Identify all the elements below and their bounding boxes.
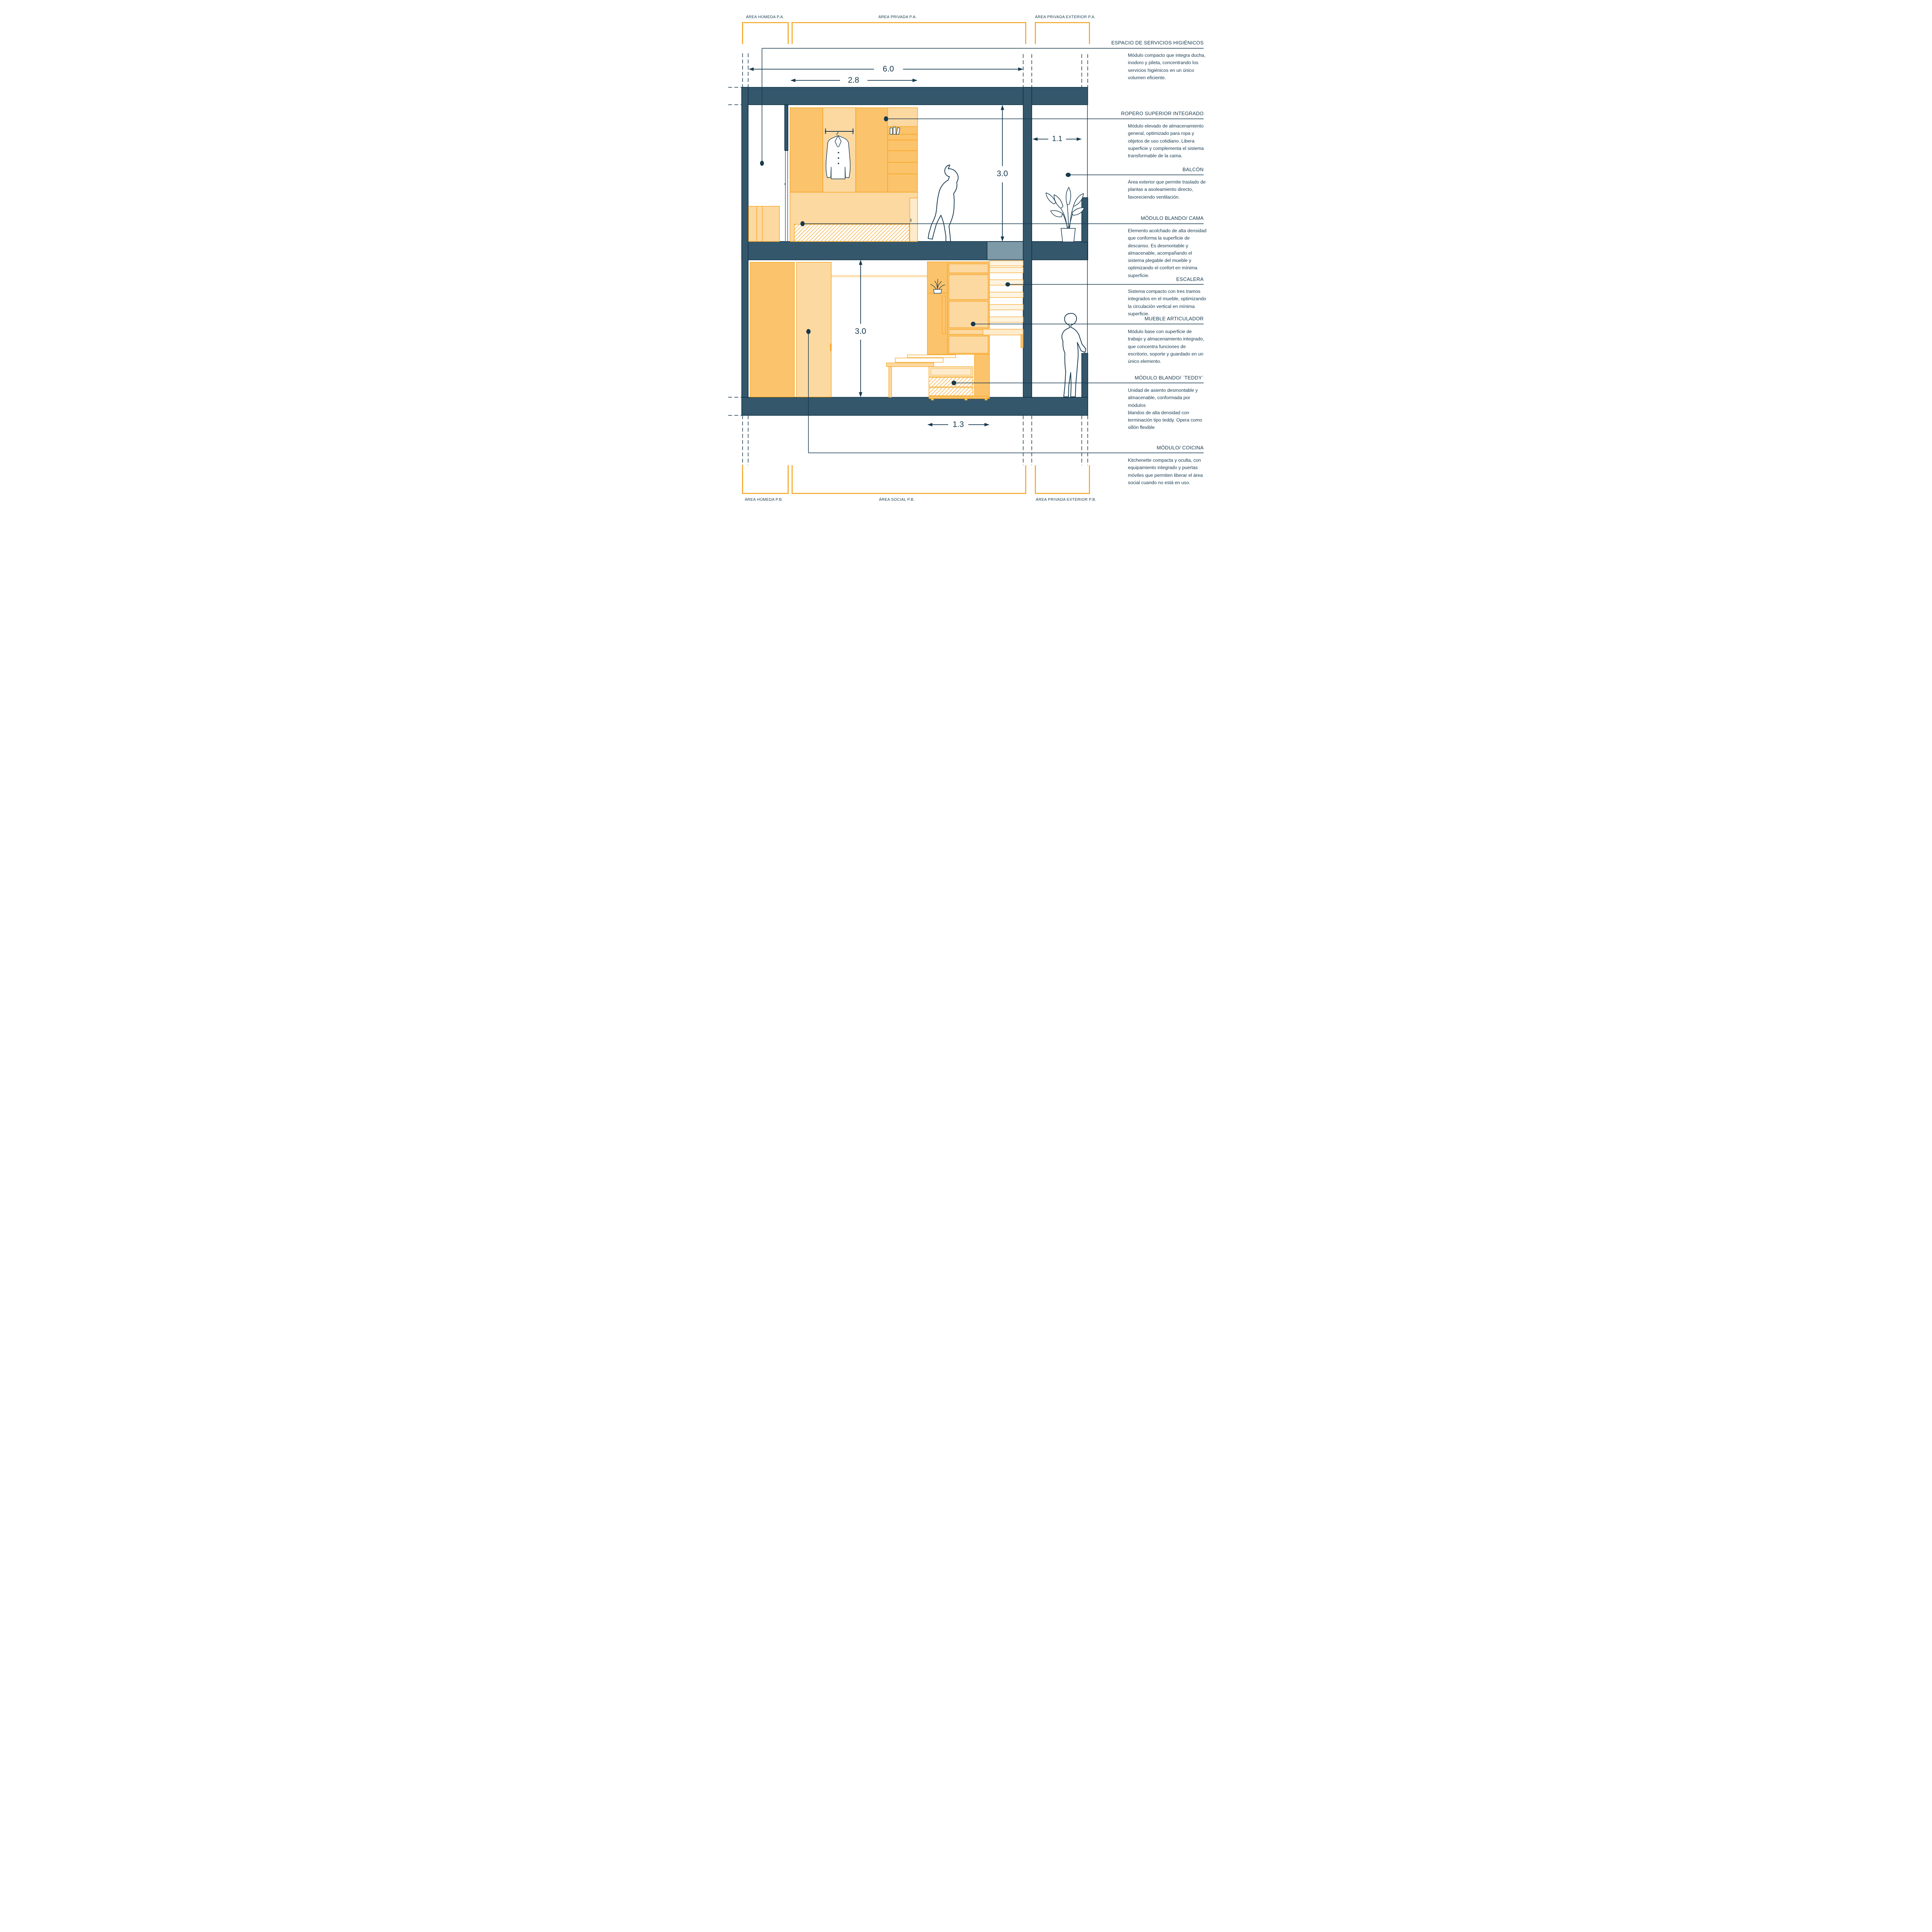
kitchen-door-handle: [830, 344, 832, 351]
leader-dot: [952, 381, 956, 385]
foot: [985, 399, 987, 400]
teddy-module: [929, 378, 973, 387]
foot: [965, 399, 967, 400]
bracket-bottom-social: [792, 465, 1026, 493]
dimension-label-balcony-width: 1.1: [1051, 135, 1063, 143]
annotation-title-teddy: MÓDULO BLANDO/ ¨TEDDY¨: [1037, 375, 1204, 381]
area-label-top-exterior: ÁREA PRIVADA EXTERIOR P.A.: [1035, 15, 1096, 19]
bracket-bottom-exterior: [1036, 465, 1090, 493]
area-label-bottom-exterior: ÁREA PRIVADA EXTERIOR P.B.: [1036, 498, 1097, 502]
annotation-body-cama: Elemento acolchado de alta densidad que …: [1128, 227, 1207, 279]
annotation-body-mueble: Módulo base con superficie de trabajo y …: [1128, 328, 1207, 365]
dimension-label-module-width: 1.3: [951, 420, 965, 429]
lower-floor-furniture: [750, 261, 1023, 400]
bracket-bottom-humeda: [743, 465, 788, 493]
bathroom-partition: [785, 105, 788, 150]
leader-dot: [801, 221, 805, 226]
stair-wall-support: [1021, 335, 1023, 348]
bracket-top-humeda: [743, 23, 788, 44]
desk-pullout-board-top: [908, 355, 956, 358]
area-label-top-humeda: ÁREA HÚMEDA P.A.: [746, 15, 784, 19]
kitchen-module: [750, 262, 927, 397]
wardrobe-module: [790, 108, 918, 192]
leader-dot: [1066, 173, 1071, 177]
mid-slab: [742, 241, 1088, 260]
area-label-bottom-social: ÁREA SOCIAL P.B.: [879, 498, 915, 502]
leader-dot: [806, 329, 811, 334]
teddy-module: [929, 388, 973, 396]
kitchen-module-right: [797, 262, 832, 397]
annotation-title-ropero: ROPERO SUPERIOR INTEGRADO: [1037, 111, 1204, 116]
upper-floor-furniture: [748, 108, 917, 241]
plant-pot: [1061, 228, 1075, 242]
annotation-body-servicios: Módulo compacto que integra ducha, inodo…: [1128, 52, 1207, 82]
dimension-label-upper-height: 3.0: [995, 169, 1009, 179]
balcony-plant-icon: [1046, 187, 1084, 242]
bathroom-sliding-door: [785, 151, 788, 241]
stair-landing: [983, 329, 1023, 335]
leader-dot: [884, 116, 888, 121]
dimension-label-wardrobe-width: 2.8: [847, 76, 860, 85]
cabinet-lower-gable: [975, 354, 990, 399]
annotation-title-mueble: MUEBLE ARTICULADOR: [1037, 316, 1204, 321]
annotation-title-escalera: ESCALERA: [1037, 276, 1204, 282]
bathroom-cabinet: [748, 206, 779, 241]
annotation-body-escalera: Sistema compacto con tres tramos integra…: [1128, 288, 1207, 318]
kitchen-module-left: [750, 262, 794, 397]
floor-slab: [742, 397, 1088, 415]
drawer-base: [929, 396, 988, 399]
leader-ropero: [884, 116, 1204, 121]
desk-top: [886, 363, 934, 367]
foot: [931, 399, 934, 400]
books-icon: [890, 127, 900, 134]
annotation-title-cocina: MÓDULO/ COICINA: [1037, 445, 1204, 451]
annotation-body-ropero: Módulo elevado de almacenamiento general…: [1128, 122, 1207, 160]
annotation-body-balcon: Área exterior que permite traslado de pl…: [1128, 179, 1207, 201]
annotation-title-servicios: ESPACIO DE SERVICIOS HIGIÉNICOS: [1037, 40, 1204, 46]
walking-person-figure: [928, 165, 958, 241]
annotation-title-cama: MÓDULO BLANDO/ CAMA: [1037, 215, 1204, 221]
leader-dot: [971, 322, 976, 327]
annotation-title-balcon: BALCÓN: [1037, 167, 1204, 172]
annotation-body-teddy: Unidad de asiento desmontable y almacena…: [1128, 387, 1207, 432]
roof-slab: [742, 87, 1088, 105]
bed-module: [790, 192, 918, 242]
leader-escalera: [1005, 282, 1204, 287]
desk-pullout-board-mid: [895, 358, 943, 362]
desk-leg: [889, 367, 891, 398]
leader-balcon: [1066, 173, 1204, 177]
mid-slab-gray-section: [987, 241, 1024, 260]
leader-dot: [1005, 282, 1010, 287]
section-drawing-sheet: ÁREA HÚMEDA P.A. ÁREA PRIVADA P.A. ÁREA …: [718, 0, 1214, 507]
bracket-top-privada: [792, 23, 1026, 44]
area-label-bottom-humeda: ÁREA HÚMEDA P.B.: [745, 498, 783, 502]
right-wall: [1023, 87, 1032, 397]
leader-dot: [760, 161, 764, 166]
left-wall: [742, 87, 748, 397]
annotation-body-cocina: Kitchenette compacta y oculta, con equip…: [1128, 457, 1207, 486]
dimension-label-lower-height: 3.0: [854, 327, 867, 336]
area-label-top-privada: ÁREA PRIVADA P.A.: [878, 15, 917, 19]
dimension-label-overall-width: 6.0: [881, 65, 895, 74]
mattress-hatch: [794, 224, 910, 242]
